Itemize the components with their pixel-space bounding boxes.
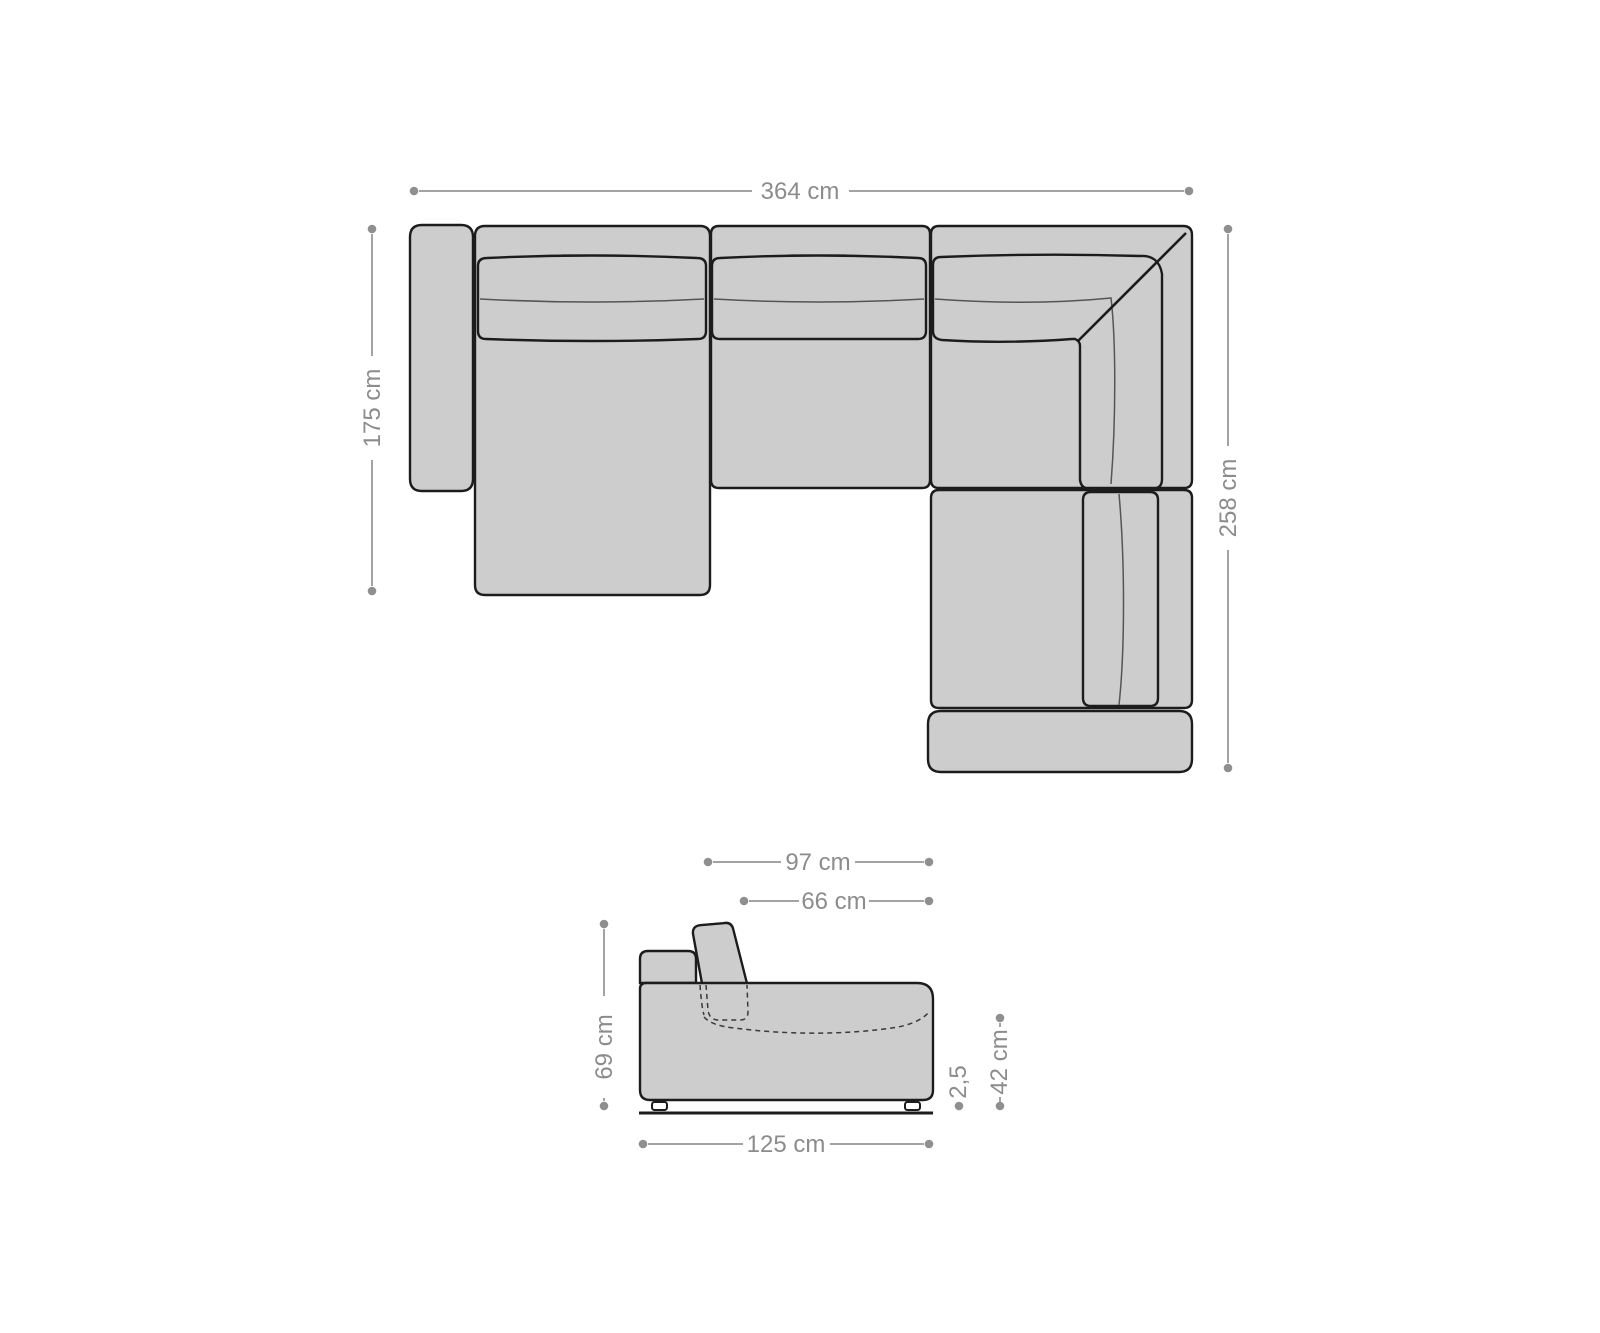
svg-text:2,5: 2,5 (945, 1065, 972, 1098)
svg-text:66 cm: 66 cm (801, 888, 866, 915)
svg-text:42 cm: 42 cm (986, 1029, 1013, 1094)
svg-text:97 cm: 97 cm (785, 849, 850, 876)
svg-text:258 cm: 258 cm (1215, 459, 1242, 538)
svg-text:125 cm: 125 cm (747, 1131, 826, 1158)
svg-text:175 cm: 175 cm (359, 369, 386, 448)
svg-text:364 cm: 364 cm (761, 178, 840, 205)
svg-text:69 cm: 69 cm (591, 1014, 618, 1079)
